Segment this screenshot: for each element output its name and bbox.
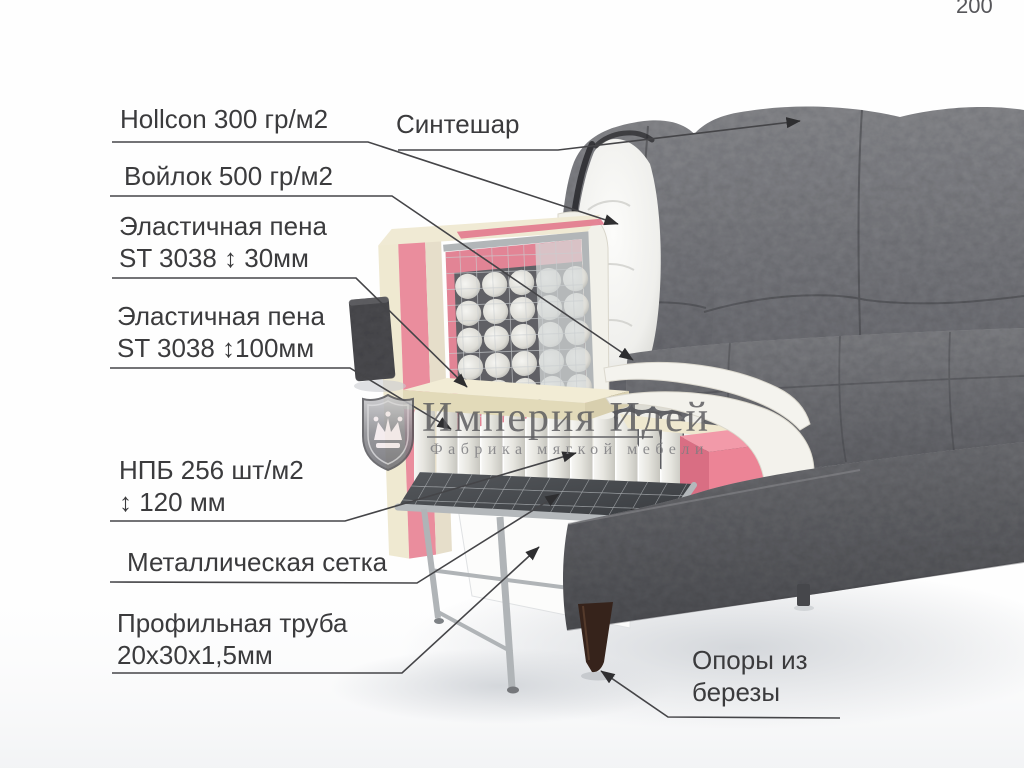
label-felt-text: Войлок 500 гр/м2 — [124, 161, 333, 193]
label-mesh: Металлическая сетка — [127, 547, 387, 579]
rear-leg — [797, 584, 810, 606]
label-foam100-line2: ST 3038 ↕100мм — [117, 333, 325, 365]
label-mesh-text: Металлическая сетка — [127, 547, 387, 579]
label-felt: Войлок 500 гр/м2 — [124, 161, 333, 193]
label-sinteshar: Синтешар — [396, 109, 520, 141]
label-foam30: Эластичная пена ST 3038 ↕ 30мм — [119, 211, 327, 274]
leg-shadow — [581, 672, 615, 681]
page-number: 200 — [956, 0, 993, 19]
label-sinteshar-text: Синтешар — [396, 109, 520, 141]
label-foam30-line1: Эластичная пена — [119, 211, 327, 243]
label-tube: Профильная труба 20х30х1,5мм — [117, 608, 347, 671]
watermark-brand: Империя Идей — [422, 394, 710, 442]
label-hollcon-text: Hollcon 300 гр/м2 — [120, 104, 328, 136]
frame-shadow — [330, 648, 670, 724]
label-supports: Опоры из березы — [692, 645, 808, 708]
label-supports-line2: березы — [692, 677, 808, 709]
label-springs: НПБ 256 шт/м2 ↕ 120 мм — [119, 455, 304, 518]
label-tube-line1: Профильная труба — [117, 608, 347, 640]
label-springs-line1: НПБ 256 шт/м2 — [119, 455, 304, 487]
label-foam100-line1: Эластичная пена — [117, 301, 325, 333]
sofa-cutaway-diagram: Империя Идей Фабрика мягкой мебели Hollc… — [0, 0, 1024, 768]
watermark-tagline: Фабрика мягкой мебели — [430, 441, 709, 459]
label-supports-line1: Опоры из — [692, 645, 808, 677]
label-foam100: Эластичная пена ST 3038 ↕100мм — [117, 301, 325, 364]
label-tube-line2: 20х30х1,5мм — [117, 640, 347, 672]
label-hollcon: Hollcon 300 гр/м2 — [120, 104, 328, 136]
label-foam30-line2: ST 3038 ↕ 30мм — [119, 243, 327, 275]
crown-shield-icon — [358, 392, 418, 472]
label-springs-line2: ↕ 120 мм — [119, 487, 304, 519]
